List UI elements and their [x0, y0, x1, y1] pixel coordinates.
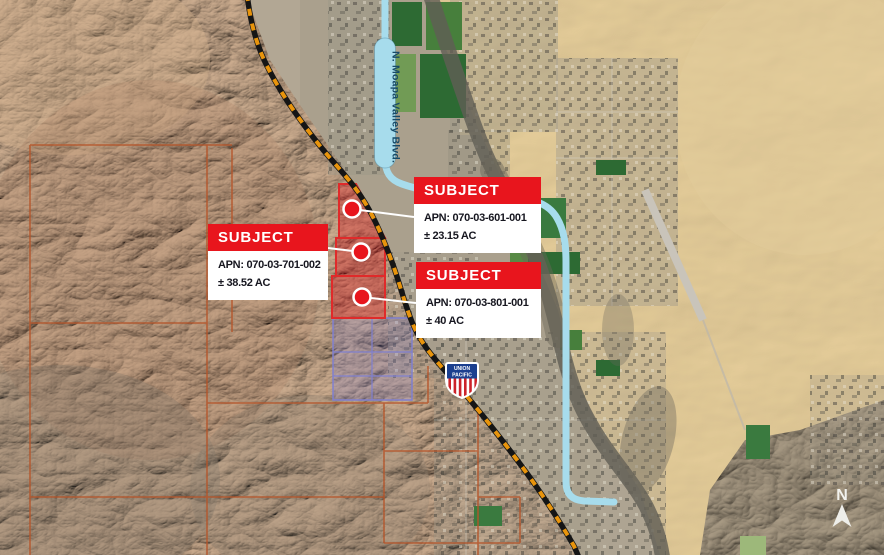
callout-acreage: ± 23.15 AC	[424, 228, 533, 246]
callout-title: SUBJECT	[208, 224, 328, 251]
callout-apn-601: SUBJECT APN: 070-03-601-001 ± 23.15 AC	[414, 177, 541, 253]
callout-apn-number: APN: 070-03-801-001	[426, 295, 533, 313]
road-label: N. Moapa Valley Blvd.	[390, 51, 402, 163]
adjacent-parcels-blue	[333, 318, 412, 400]
subject-marker-801	[354, 289, 371, 306]
callout-title: SUBJECT	[416, 262, 541, 289]
subject-marker-601	[344, 201, 361, 218]
shield-text-pacific: PACIFIC	[452, 373, 472, 379]
map-canvas: N. Moapa Valley Blvd. UNION PACIFIC	[0, 0, 884, 555]
callout-apn-801: SUBJECT APN: 070-03-801-001 ± 40 AC	[416, 262, 541, 338]
subject-marker-701	[353, 244, 370, 261]
callout-apn-number: APN: 070-03-701-002	[218, 257, 320, 275]
callout-acreage: ± 38.52 AC	[218, 275, 320, 293]
north-arrow-label: N	[836, 487, 848, 504]
callout-acreage: ± 40 AC	[426, 313, 533, 331]
callout-apn-number: APN: 070-03-601-001	[424, 210, 533, 228]
callout-apn-701: SUBJECT APN: 070-03-701-002 ± 38.52 AC	[208, 224, 328, 300]
shield-text-union: UNION	[454, 366, 471, 372]
callout-title: SUBJECT	[414, 177, 541, 204]
